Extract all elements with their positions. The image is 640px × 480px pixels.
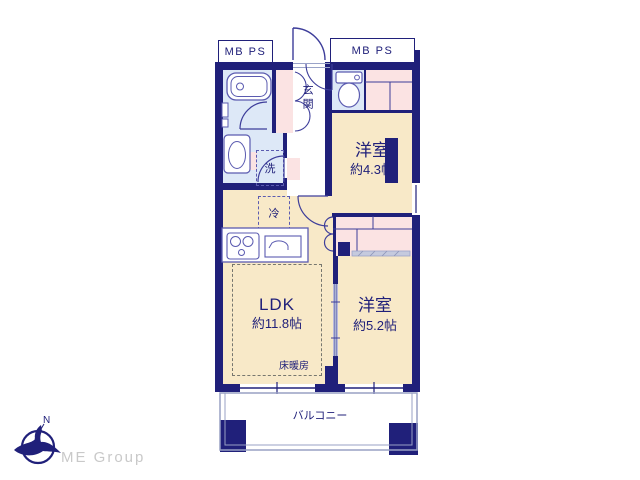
toilet-tank (336, 72, 362, 83)
toilet-bowl (339, 83, 360, 107)
compass-north-label: N (43, 415, 50, 426)
room2-size: 約5.2帖 (338, 319, 412, 333)
bifold-closet-doors (325, 217, 334, 251)
closet-top-right-dividers (365, 82, 412, 110)
floor-heating-label: 床暖房 (266, 361, 322, 372)
compass-bird-icon (14, 425, 61, 455)
room2-name: 洋室 (338, 297, 412, 316)
room1-name: 洋室 (332, 142, 412, 161)
company-logo-text: ME Group (61, 450, 145, 467)
balcony-label: バルコニー (280, 410, 360, 422)
entrance-sill (293, 64, 330, 68)
ldk-name: LDK (232, 296, 322, 315)
washroom-door-arc (258, 156, 284, 182)
room1-door-arc (298, 196, 328, 226)
closet-room2-dividers (333, 216, 412, 256)
floor-plan: MB PS MB PS 洗 冷 (0, 0, 640, 480)
entrance-label: 玄関 (301, 84, 313, 112)
entrance-door-arc (293, 28, 325, 60)
bathroom-door-arc (240, 102, 267, 129)
bathtub (227, 73, 271, 100)
washbasin-counter (224, 135, 250, 173)
room1-size: 約4.3帖 (332, 163, 412, 177)
bath-counter (222, 103, 228, 117)
ldk-size: 約11.8帖 (232, 317, 322, 331)
fixtures-layer (0, 0, 640, 480)
bath-shelf (222, 119, 228, 127)
